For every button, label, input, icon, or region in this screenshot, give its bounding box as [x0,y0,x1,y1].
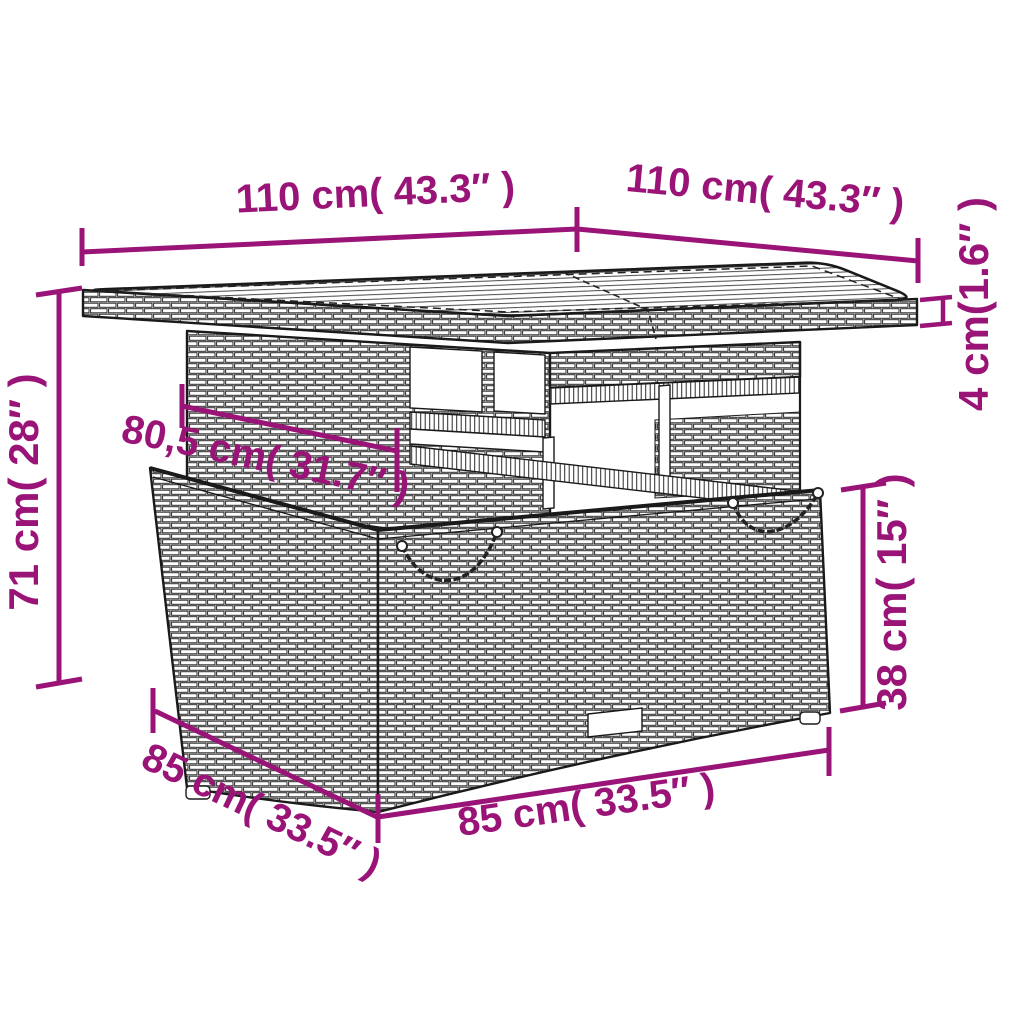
foot-pad-right [800,712,820,724]
product-dimension-diagram: 110 cm( 43.3″ ) 110 cm( 43.3″ ) 4 cm(1.6… [0,0,1024,1024]
dimension-total-height: 71 cm( 28″ ) [0,288,82,687]
tabletop [83,263,917,343]
window-opening-left [410,347,482,412]
dimension-top-width-label: 110 cm( 43.3″ ) [235,164,516,221]
window-opening-right [494,352,545,414]
dimension-base-height: 38 cm( 15″ ) [840,473,915,711]
rope-ring-front-right [492,527,502,537]
rope-ring-right-right [813,488,823,498]
dimension-tabletop-thickness: 4 cm(1.6″ ) [920,197,997,411]
dimension-top-width: 110 cm( 43.3″ ) [82,164,577,266]
rope-ring-front-left [397,541,407,551]
rope-ring-right-left [728,498,738,508]
box-right-face [378,490,830,812]
dimension-base-height-label: 38 cm( 15″ ) [868,473,915,710]
dimension-tabletop-thickness-label: 4 cm(1.6″ ) [950,197,997,411]
storage-box [150,468,830,812]
frame-post-right [659,385,670,479]
dimension-top-depth-label: 110 cm( 43.3″ ) [624,156,906,226]
dimension-total-height-label: 71 cm( 28″ ) [0,373,47,610]
